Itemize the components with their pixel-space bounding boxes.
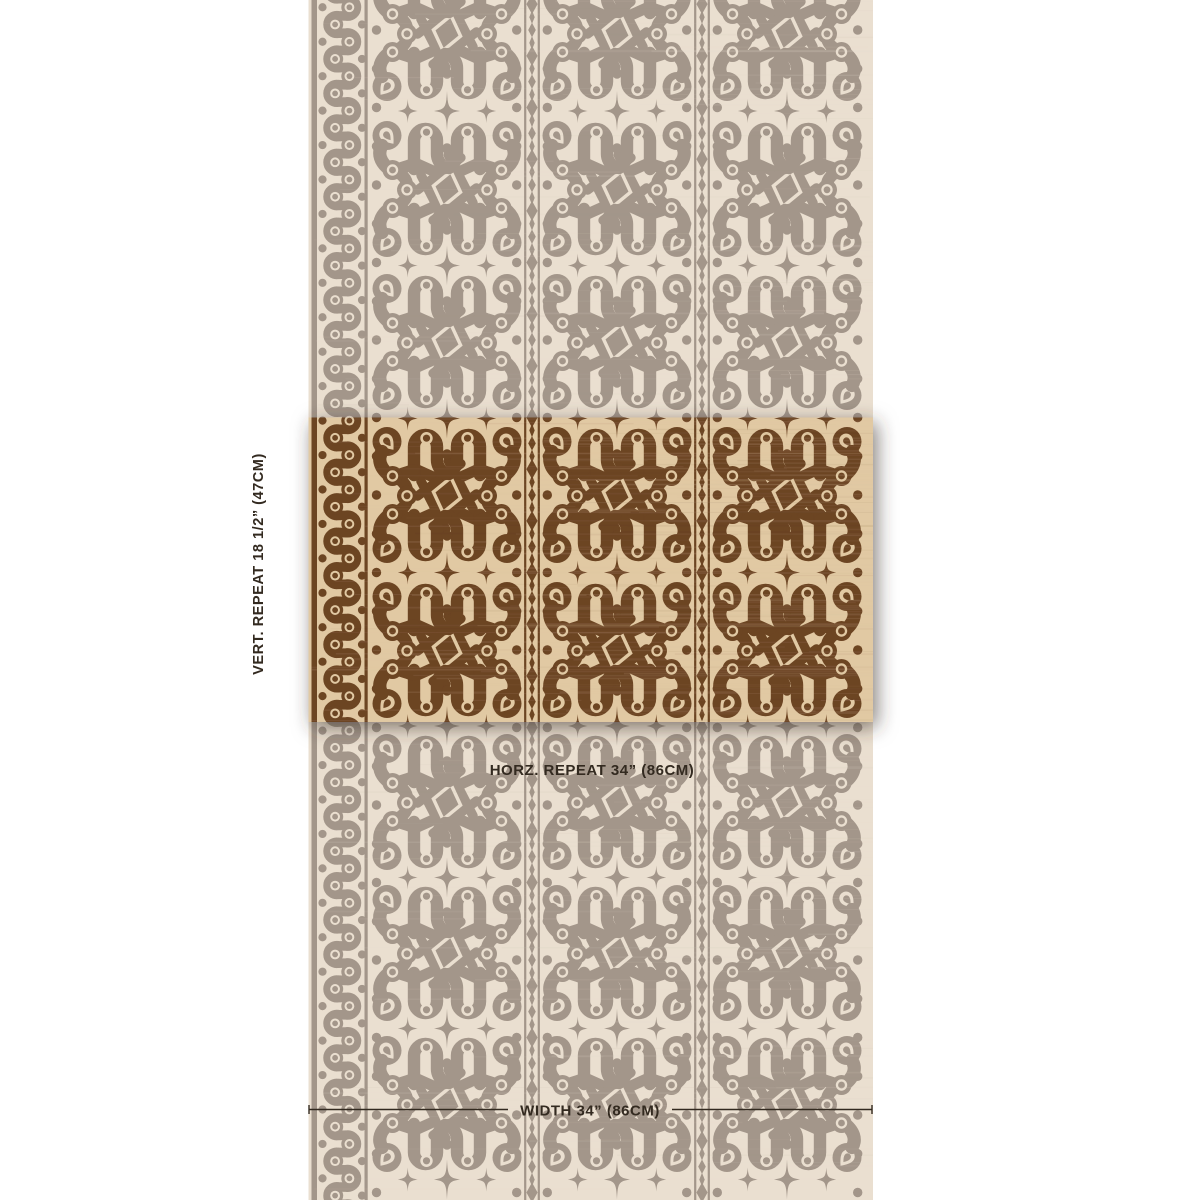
svg-text:VERT. REPEAT 18 1/2” (47CM): VERT. REPEAT 18 1/2” (47CM) (251, 453, 267, 675)
svg-text:WIDTH 34” (86CM): WIDTH 34” (86CM) (520, 1103, 660, 1120)
svg-text:HORZ. REPEAT 34” (86CM): HORZ. REPEAT 34” (86CM) (490, 762, 695, 779)
